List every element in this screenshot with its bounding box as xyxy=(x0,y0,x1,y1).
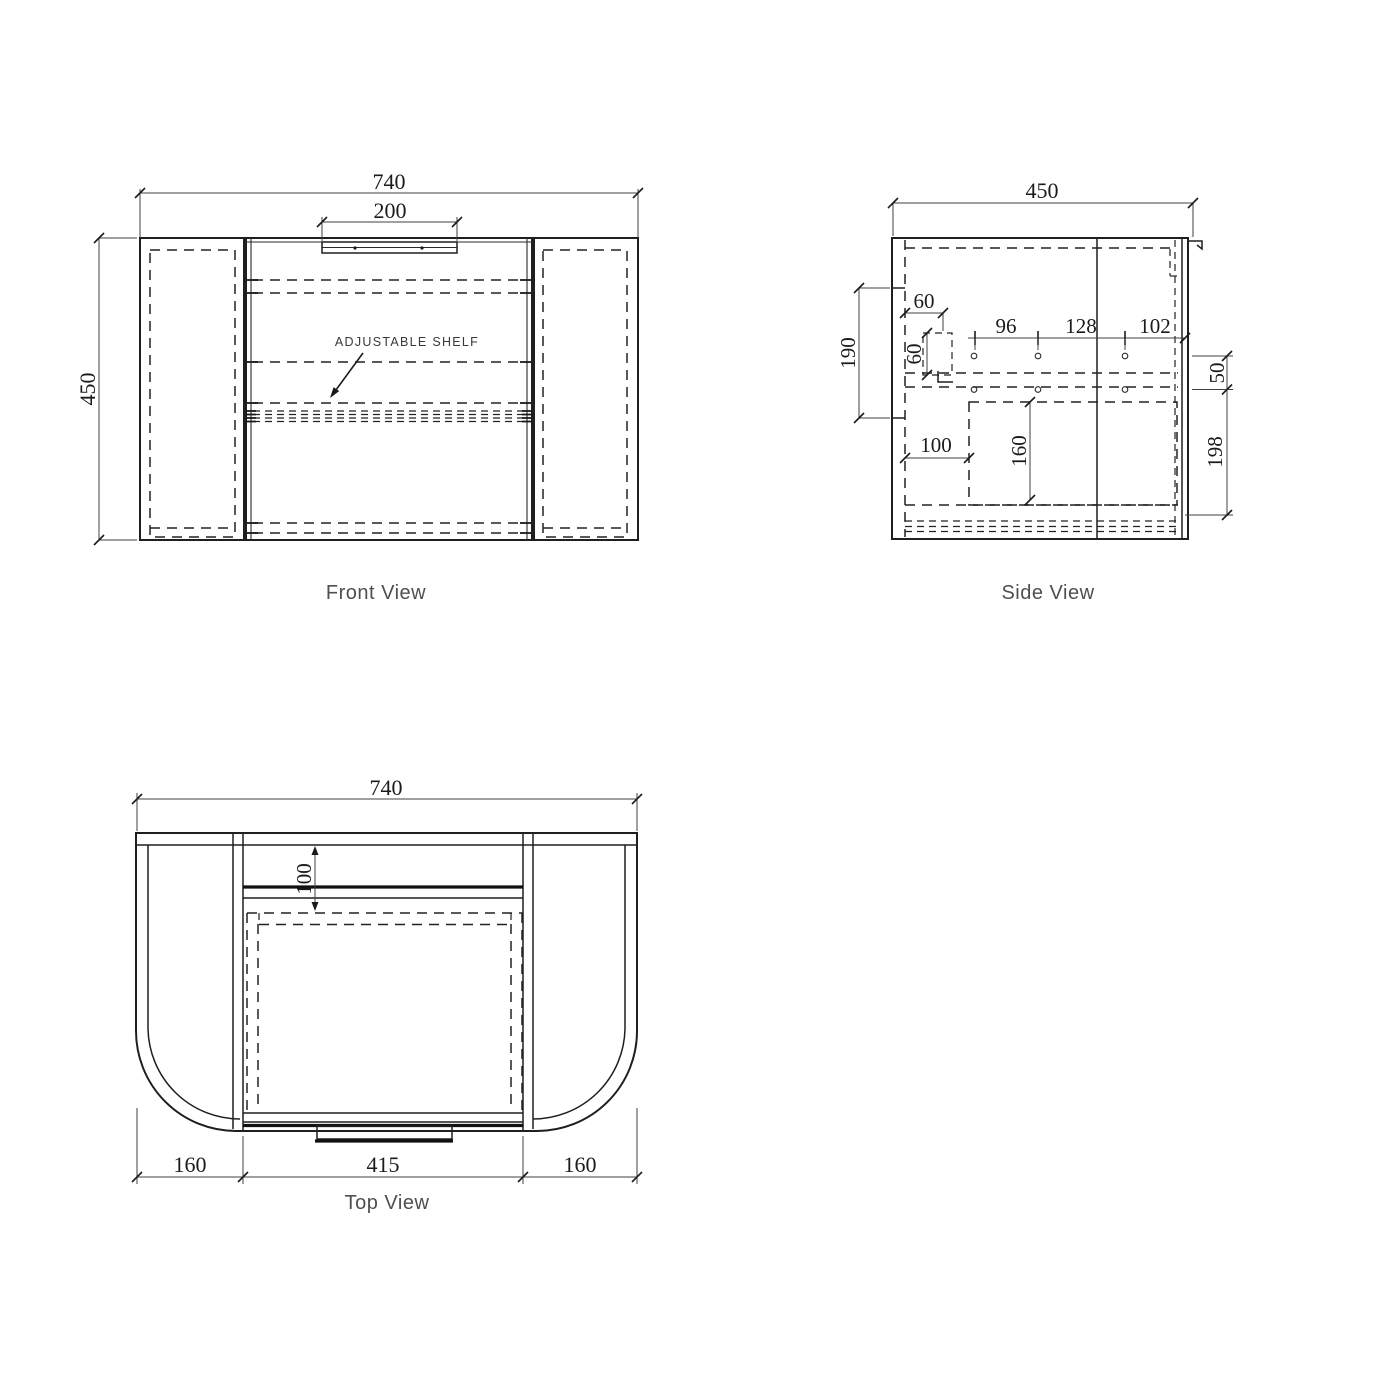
top-dim-bottom: 160 415 160 xyxy=(132,1108,642,1184)
top-dim-center-text: 415 xyxy=(367,1152,400,1177)
front-shelf-callout-text: ADJUSTABLE SHELF xyxy=(335,335,479,349)
side-top-hook xyxy=(1189,241,1202,249)
side-dim-cutout-offset: 100 xyxy=(900,433,974,463)
top-inner-shell-left xyxy=(148,845,240,1119)
side-dim-hole-pitches: 96 128 102 xyxy=(968,314,1190,350)
top-view: 740 100 160 415 160 Top View xyxy=(132,775,642,1214)
front-dim-handle-text: 200 xyxy=(374,198,407,223)
top-dim-right-text: 160 xyxy=(564,1152,597,1177)
front-left-panel xyxy=(140,238,244,540)
side-dim-bracket-offset: 60 xyxy=(900,289,948,331)
side-dim-cutout-depth: 160 xyxy=(1007,397,1035,505)
side-dim-cutout-offset-text: 100 xyxy=(920,433,952,457)
front-handle xyxy=(322,242,457,253)
front-shelf-endcaps xyxy=(246,280,532,533)
side-view: 450 190 60 60 xyxy=(836,178,1233,604)
side-dim-bracket-size: 60 xyxy=(902,328,932,380)
front-view-label: Front View xyxy=(326,582,426,604)
top-view-label: Top View xyxy=(345,1192,430,1214)
side-view-label: Side View xyxy=(1001,582,1094,604)
front-centre-carcass xyxy=(246,238,532,540)
front-dim-height-text: 450 xyxy=(75,373,100,406)
top-dim-width-text: 740 xyxy=(370,775,403,800)
front-left-panel-hidden-edge xyxy=(150,250,235,537)
front-view: 740 200 450 ADJUSTABLE SHELF Front View xyxy=(75,169,643,604)
side-dim-wall-span: 190 xyxy=(836,283,890,423)
top-dim-width: 740 xyxy=(132,775,642,831)
front-right-panel-hidden-edge xyxy=(543,250,627,537)
front-shelf-hidden-lines xyxy=(253,280,525,533)
front-shelf-callout: ADJUSTABLE SHELF xyxy=(330,335,479,398)
side-dim-cutout-depth-text: 160 xyxy=(1007,435,1031,467)
top-dividers xyxy=(233,833,533,1131)
top-dim-back-inset-text: 100 xyxy=(292,863,316,895)
top-dim-back-inset: 100 xyxy=(292,846,319,911)
front-right-panel xyxy=(534,238,638,540)
side-carcass-outline xyxy=(892,238,1188,539)
side-dim-hole-row-gap: 50 xyxy=(1192,351,1233,395)
side-dim-depth: 450 xyxy=(888,178,1198,237)
top-inner-shell-right xyxy=(533,845,625,1119)
top-handle xyxy=(315,1126,453,1141)
side-dim-wall-span-text: 190 xyxy=(836,337,860,369)
side-dim-depth-text: 450 xyxy=(1026,178,1059,203)
side-dim-hole-pitch-a-text: 96 xyxy=(996,314,1017,338)
front-shelf-callout-leader xyxy=(333,353,363,394)
side-dim-bottom-offset-text: 198 xyxy=(1203,436,1227,468)
side-dim-hole-pitch-c-text: 102 xyxy=(1139,314,1171,338)
front-dim-handle: 200 xyxy=(317,198,462,241)
side-dim-bracket-size-text: 60 xyxy=(902,344,926,365)
side-dim-bottom-offset: 198 xyxy=(1185,390,1233,521)
side-dim-bracket-offset-text: 60 xyxy=(914,289,935,313)
top-dim-left-text: 160 xyxy=(174,1152,207,1177)
front-dim-width-text: 740 xyxy=(373,169,406,194)
drawing-svg: 740 200 450 ADJUSTABLE SHELF Front View xyxy=(0,0,1400,1400)
side-dim-hole-row-gap-text: 50 xyxy=(1205,363,1229,384)
top-centre-cabinet xyxy=(243,887,523,1126)
side-cutout-hidden xyxy=(969,402,1177,505)
side-dim-hole-pitch-b-text: 128 xyxy=(1065,314,1097,338)
top-outer-shell xyxy=(136,833,637,1131)
technical-drawing-sheet: 740 200 450 ADJUSTABLE SHELF Front View xyxy=(0,0,1400,1400)
front-dim-height: 450 xyxy=(75,233,137,545)
